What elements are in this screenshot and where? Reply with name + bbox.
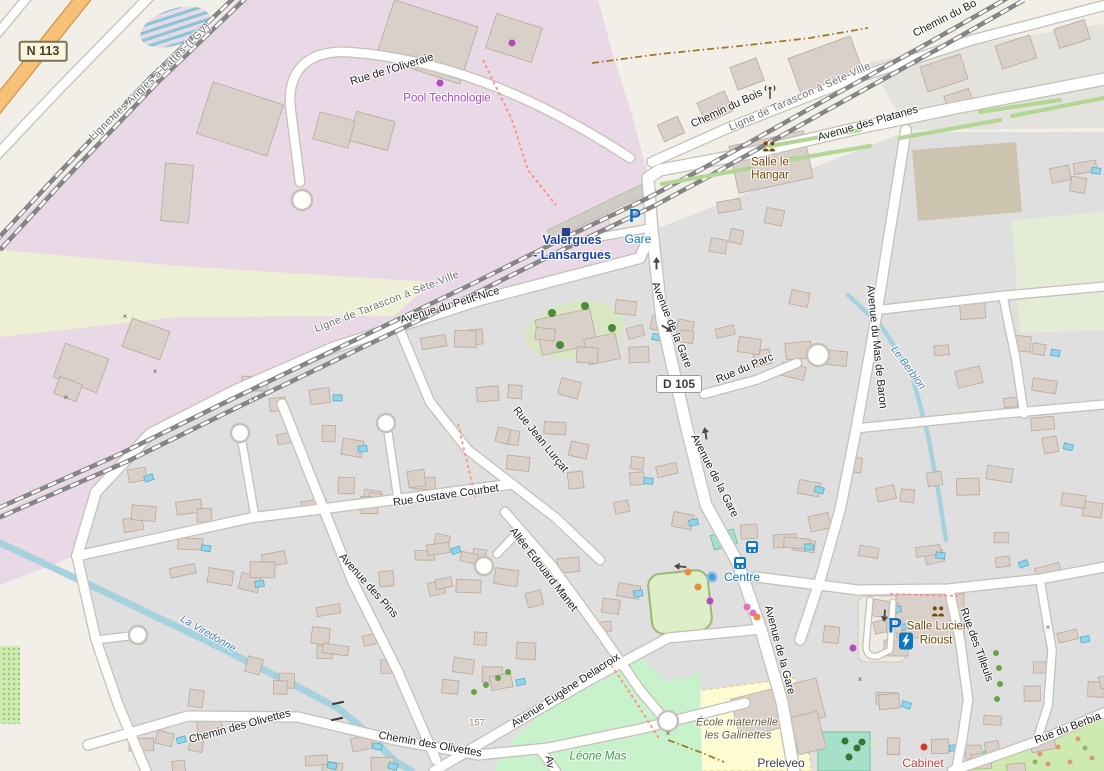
map-geometry xyxy=(0,0,1104,771)
map-canvas[interactable]: Ligne des Angles à Lattes (LGV)Rue de l'… xyxy=(0,0,1104,771)
